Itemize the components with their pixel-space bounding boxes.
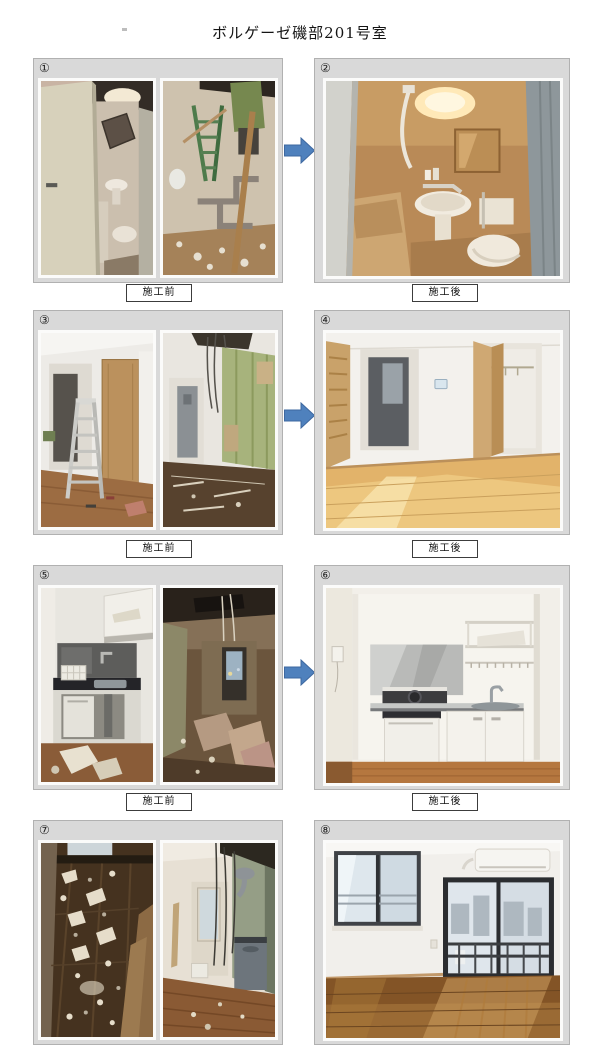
- old-kitchen-before-photo: [38, 585, 156, 785]
- new-kitchen-after-photo: [323, 585, 563, 786]
- before-panel-5: ⑤: [33, 565, 283, 790]
- hallway-demolition-hanging-wires-photo: [160, 840, 278, 1040]
- after-panel-8: ⑧: [314, 820, 570, 1045]
- caption-after: 施工後: [412, 793, 478, 811]
- wall-demolition-green-insulation-photo: [160, 330, 278, 530]
- panel-number: ⑧: [320, 822, 331, 838]
- before-panel-3: ③: [33, 310, 283, 535]
- caption-before: 施工前: [126, 540, 192, 558]
- empty-room-after-wood-floor-photo: [323, 330, 563, 531]
- right-arrow-icon: [284, 659, 315, 686]
- floor-covered-in-debris-photo: [38, 840, 156, 1040]
- before-panel-7: ⑦: [33, 820, 283, 1045]
- right-arrow-icon: [284, 402, 315, 429]
- caption-before: 施工前: [126, 284, 192, 302]
- bathroom-after-renovation-photo: [323, 78, 563, 279]
- after-panel-2: ②: [314, 58, 570, 283]
- bathroom-demolition-ladder-pipes-photo: [160, 78, 278, 278]
- panel-number: ④: [320, 312, 331, 328]
- before-panel-1: ①: [33, 58, 283, 283]
- panel-number: ⑤: [39, 567, 50, 583]
- dark-room-demolition-photo: [160, 585, 278, 785]
- bathroom-before-open-door-photo: [38, 78, 156, 278]
- panel-number: ⑦: [39, 822, 50, 838]
- hallway-with-stepladder-photo: [38, 330, 156, 530]
- right-arrow-icon: [284, 137, 315, 164]
- caption-after: 施工後: [412, 284, 478, 302]
- panel-number: ②: [320, 60, 331, 76]
- after-panel-6: ⑥: [314, 565, 570, 790]
- page-title: ボルゲーゼ磯部201号室: [0, 22, 600, 43]
- panel-number: ①: [39, 60, 50, 76]
- panel-number: ③: [39, 312, 50, 328]
- living-room-after-photo: [323, 840, 563, 1041]
- after-panel-4: ④: [314, 310, 570, 535]
- panel-number: ⑥: [320, 567, 331, 583]
- renovation-report-page: ボルゲーゼ磯部201号室 ①: [0, 0, 600, 1064]
- caption-before: 施工前: [126, 793, 192, 811]
- caption-after: 施工後: [412, 540, 478, 558]
